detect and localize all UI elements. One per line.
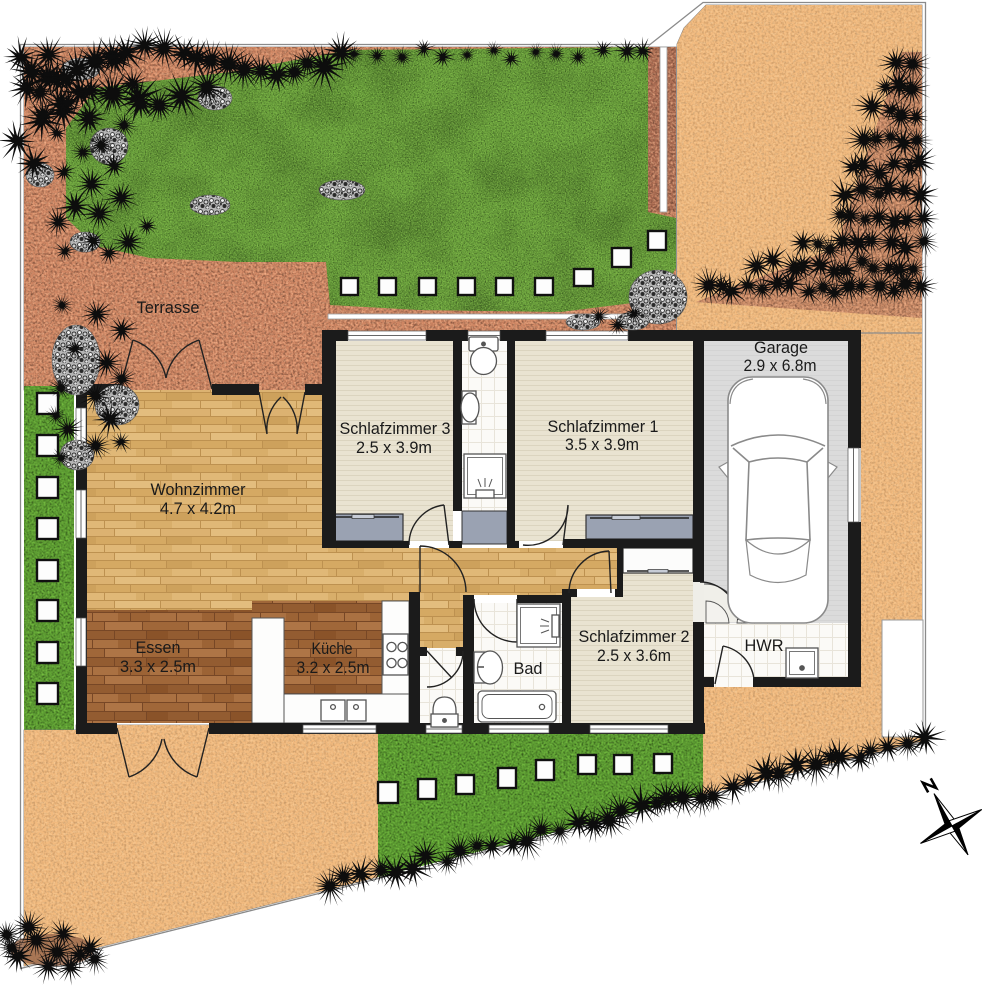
svg-text:3.5 x 3.9m: 3.5 x 3.9m <box>565 436 639 454</box>
svg-text:Wohnzimmer: Wohnzimmer <box>151 480 246 499</box>
svg-text:3.3 x 2.5m: 3.3 x 2.5m <box>120 658 196 676</box>
svg-text:HWR: HWR <box>745 636 784 655</box>
svg-text:Essen: Essen <box>136 638 181 657</box>
svg-text:2.5 x 3.6m: 2.5 x 3.6m <box>597 647 671 665</box>
svg-text:Schlafzimmer 3: Schlafzimmer 3 <box>340 419 451 438</box>
svg-text:3.2 x 2.5m: 3.2 x 2.5m <box>297 659 370 677</box>
svg-text:2.9 x 6.8m: 2.9 x 6.8m <box>744 357 817 375</box>
svg-text:Schlafzimmer 2: Schlafzimmer 2 <box>579 627 690 646</box>
svg-text:Bad: Bad <box>514 659 543 678</box>
svg-text:Terrasse: Terrasse <box>137 298 200 317</box>
svg-text:Küche: Küche <box>312 639 353 658</box>
svg-text:Garage: Garage <box>754 338 808 357</box>
svg-text:Schlafzimmer 1: Schlafzimmer 1 <box>548 417 659 436</box>
svg-text:4.7 x 4.2m: 4.7 x 4.2m <box>160 500 236 518</box>
svg-text:2.5 x 3.9m: 2.5 x 3.9m <box>356 439 432 457</box>
